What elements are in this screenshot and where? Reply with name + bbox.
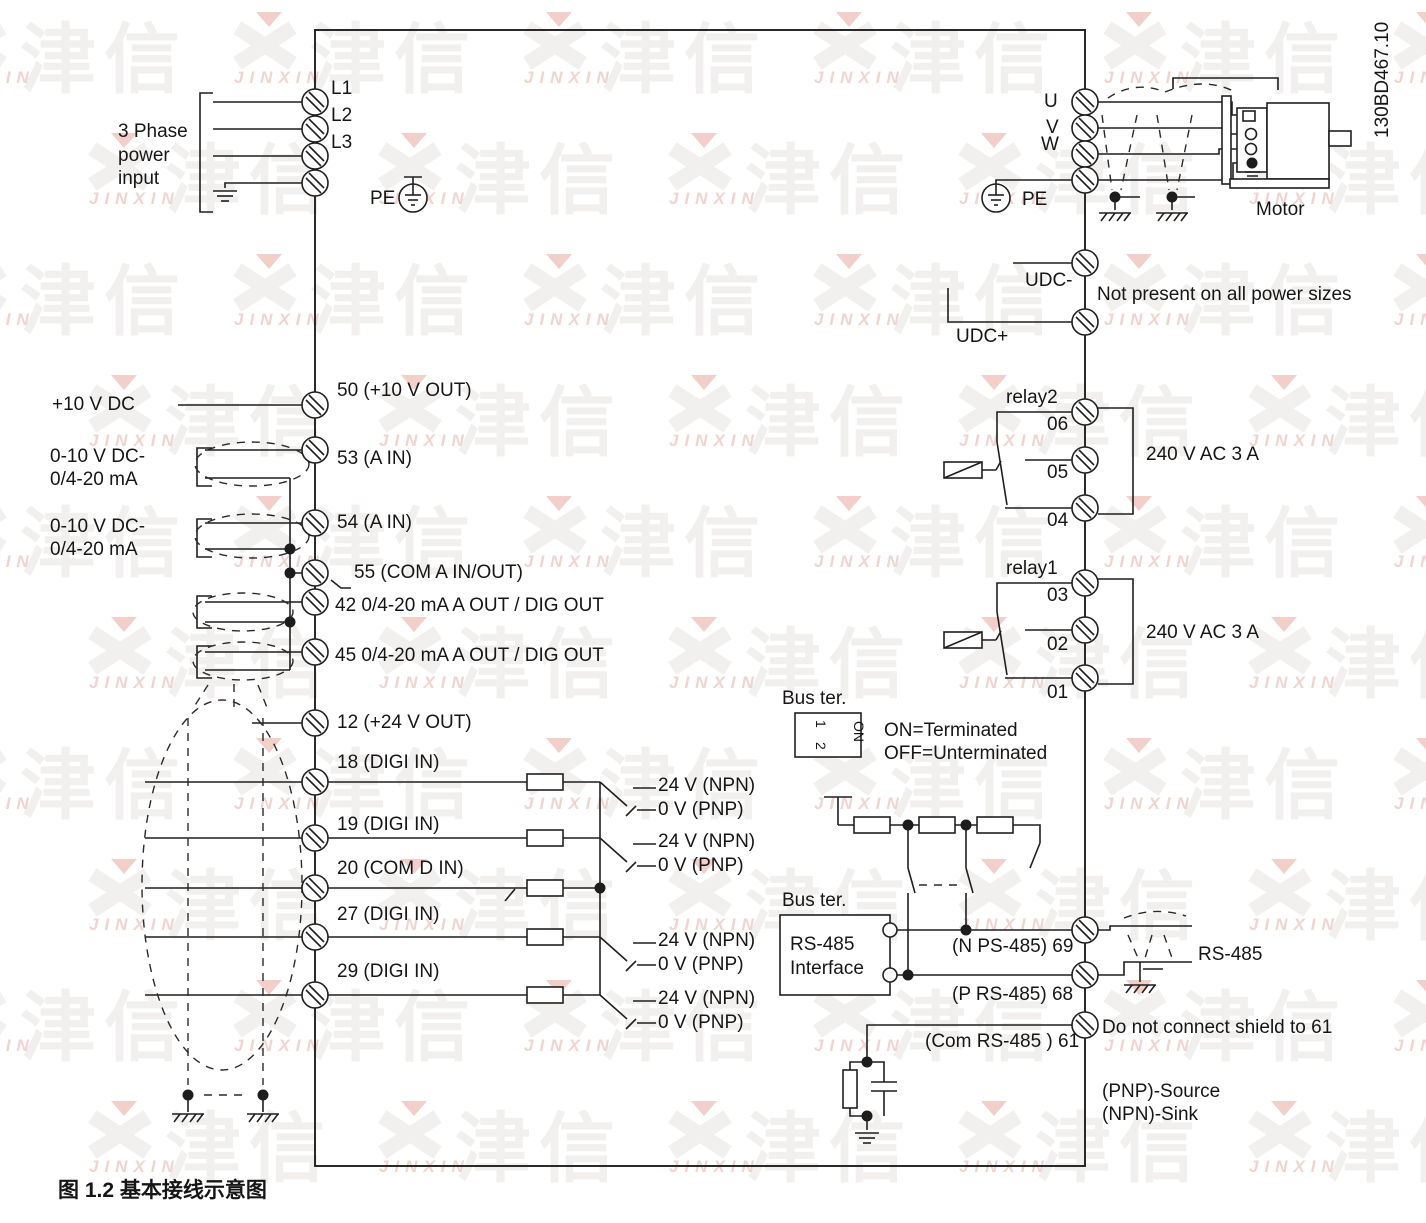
terminal-02-label: 02 [1047,634,1068,655]
npn-label-19: 24 V (NPN) [658,831,755,852]
pnp-source-note: (PNP)-Source [1102,1081,1220,1102]
bus-ter-label: Bus ter. [782,688,846,709]
terminal-54-label: 54 (A IN) [337,512,412,533]
pnp-label-27: 0 V (PNP) [658,954,744,975]
terminal-12-label: 12 (+24 V OUT) [337,712,472,733]
npn-label-29: 24 V (NPN) [658,988,755,1009]
terminal-42-label: 42 0/4-20 mA A OUT / DIG OUT [335,595,604,616]
motor-symbol [1222,96,1351,188]
pnp-label-29: 0 V (PNP) [658,1012,744,1033]
shield-note: Do not connect shield to 61 [1102,1017,1332,1038]
terminal-68-label: (P RS-485) 68 [952,984,1073,1005]
terminal-01-label: 01 [1047,682,1068,703]
npn-sink-note: (NPN)-Sink [1102,1104,1199,1125]
terminal-19-label: 19 (DIGI IN) [337,814,439,835]
rs485-interface-box [780,915,890,995]
ain1-range-line2: 0/4-20 mA [50,469,138,490]
terminal-29-label: 29 (DIGI IN) [337,961,439,982]
document-code: 130BD467.10 [1372,22,1393,138]
ain1-range-line1: 0-10 V DC- [50,446,145,467]
pe-earth-symbol [399,184,427,212]
dip-on-label: ON [851,721,867,742]
pnp-label-19: 0 V (PNP) [658,855,744,876]
relay2-label: relay2 [1006,387,1058,408]
npn-label-18: 24 V (NPN) [658,775,755,796]
terminal-l2-label: L2 [331,105,352,126]
terminal-20-label: 20 (COM D IN) [337,858,464,879]
relay1-wiring [944,579,1133,684]
terminal-l1-label: L1 [331,78,352,99]
figure-caption: 图 1.2 基本接线示意图 [58,1178,267,1202]
pnp-label-18: 0 V (PNP) [658,799,744,820]
motor-label: Motor [1256,199,1305,220]
ain2-range-line2: 0/4-20 mA [50,539,138,560]
pe-output-label: PE [1022,189,1047,210]
terminal-w-label: W [1041,134,1059,155]
terminal-61-label: (Com RS-485 ) 61 [925,1031,1079,1052]
npn-label-27: 24 V (NPN) [658,930,755,951]
relay2-wiring [944,408,1133,514]
terminal-27-label: 27 (DIGI IN) [337,904,439,925]
power-input-label-line1: 3 Phase [118,121,188,142]
terminal-50-label: 50 (+10 V OUT) [337,380,472,401]
terminal-45-label: 45 0/4-20 mA A OUT / DIG OUT [335,645,604,666]
dc-bus-note: Not present on all power sizes [1097,284,1352,305]
terminal-53-label: 53 (A IN) [337,448,412,469]
terminal-l3-label: L3 [331,132,352,153]
terminal-18-label: 18 (DIGI IN) [337,752,439,773]
udc-minus-label: UDC- [1025,270,1073,291]
relay2-rating: 240 V AC 3 A [1146,444,1259,465]
wiring-schematic: 3 Phase power input L1 L2 L3 PE U V W PE… [0,0,1426,1223]
wiring-diagram-page: 津信JINXIN津信JINXIN津信JINXIN津信JINXIN津信JINXIN… [0,0,1426,1223]
termination-on-text: ON=Terminated [884,720,1018,741]
bus-ter-label-2: Bus ter. [782,890,846,911]
terminal-u-label: U [1044,91,1058,112]
termination-off-text: OFF=Unterminated [884,743,1047,764]
rs485-bus-label: RS-485 [1198,944,1262,965]
terminal-06-label: 06 [1047,414,1068,435]
power-input-label-line2: power [118,145,170,166]
dip-2-label: 2 [813,742,829,750]
pe-earth-symbol [982,184,1010,212]
rs485-box-line2: Interface [790,958,864,979]
terminal-04-label: 04 [1047,510,1069,531]
relay1-rating: 240 V AC 3 A [1146,622,1259,643]
relay1-label: relay1 [1006,558,1058,579]
terminal-05-label: 05 [1047,462,1068,483]
plus10v-label: +10 V DC [52,394,135,415]
udc-plus-label: UDC+ [956,326,1008,347]
terminal-69-label: (N PS-485) 69 [952,936,1073,957]
rs485-box-line1: RS-485 [790,934,854,955]
terminal-55-label: 55 (COM A IN/OUT) [354,562,523,583]
terminal-03-label: 03 [1047,585,1068,606]
ain2-range-line1: 0-10 V DC- [50,516,145,537]
power-input-label-line3: input [118,168,160,189]
pe-input-label: PE [370,188,395,209]
dip-1-label: 1 [813,720,829,728]
